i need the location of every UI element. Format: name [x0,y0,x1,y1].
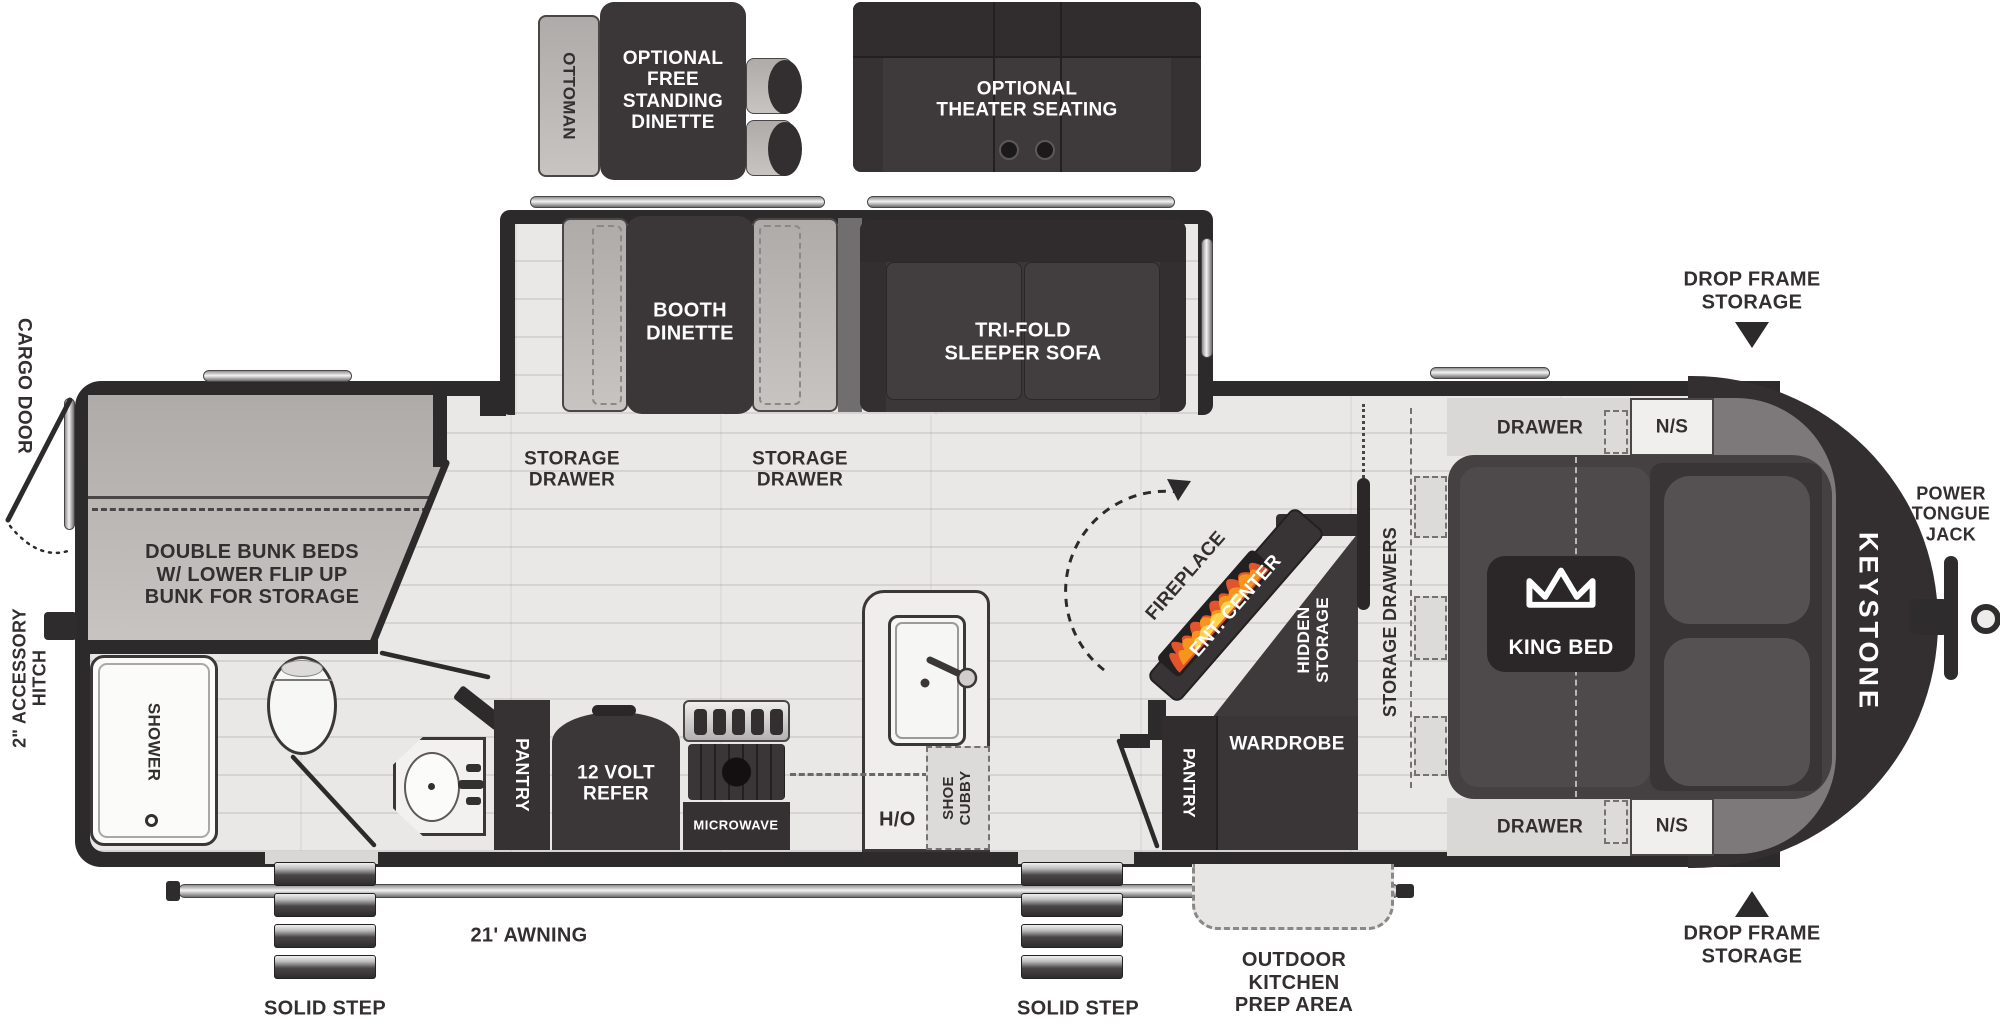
shoe-cubby-label: SHOE CUBBY [941,771,975,826]
stove-cooktop [683,700,790,742]
sleeper-sofa-label: TRI-FOLD SLEEPER SOFA [945,319,1102,364]
refrigerator-handle [592,705,636,716]
crown-icon [1518,564,1604,614]
slideout-rail-right [867,196,1175,208]
tv-mount-dotted-line [1362,404,1365,478]
pillow [1664,476,1810,624]
theater-armrest-right [1171,58,1201,172]
bedroom-dash-cabinet-front [1604,410,1628,454]
dinette-chair-back [768,122,802,176]
cargo-door-label: CARGO DOOR [13,318,34,454]
pillow [1664,638,1810,786]
under-bed-drawer [1414,596,1447,660]
bedroom-dash-cabinet-rear [1604,800,1628,844]
storage-drawers-dashed-line [1410,408,1412,788]
free-standing-dinette-label: OPTIONAL FREE STANDING DINETTE [623,48,724,134]
drop-frame-arrow-rear-icon [1735,891,1769,917]
under-bed-drawer [1414,476,1447,538]
slideout-partition [838,218,862,412]
hidden-storage-label: HIDDEN STORAGE [1294,597,1332,683]
solid-step-left [274,862,376,984]
solid-step-right-label: SOLID STEP [1017,998,1139,1021]
wardrobe-label: WARDROBE [1229,733,1344,754]
keystone-brand-label: KEYSTONE [1853,532,1884,712]
cargo-door-swing-arc [10,526,68,553]
bunk-divider-dashed [92,508,428,511]
sofa-armrest-left [860,262,886,412]
refer-label: 12 VOLT REFER [577,763,655,806]
drop-frame-arrow-front-icon [1735,322,1769,348]
solid-step-right [1021,862,1123,984]
floorplan-canvas: OTTOMAN OPTIONAL FREE STANDING DINETTE O… [0,0,2000,1028]
kitchen-sink [888,615,966,746]
cupholder-icon [1035,140,1055,160]
bath-bunk-wall [75,640,378,654]
microwave-label: MICROWAVE [693,819,778,834]
storage-drawer-left-label: STORAGE DRAWER [524,449,620,492]
under-bed-drawer [1414,716,1447,776]
booth-dinette-label: BOOTH DINETTE [646,299,734,344]
hitch-coupler [1910,599,1948,635]
outdoor-kitchen-prep-area [1192,864,1394,930]
bedroom-wall-stub-h [1120,734,1150,748]
theater-armrest-left [853,58,883,172]
kitchen-pantry-label: PANTRY [512,738,532,812]
storage-drawer-right-label: STORAGE DRAWER [752,449,848,492]
accessory-hitch-label: 2" ACCESSORY HITCH [10,608,51,748]
bath-sink-drain [428,783,435,790]
drop-frame-rear-label: DROP FRAME STORAGE [1683,922,1820,967]
bath-faucet-knob-bottom [466,797,481,805]
dinette-bench-right [752,218,838,412]
dinette-bench-left [562,218,628,412]
overhead-label: O/H [879,806,915,829]
awning-end-cap-left [166,881,180,901]
burner-slot [732,709,745,735]
bath-faucet-knob-top [466,764,481,772]
drop-frame-front-label: DROP FRAME STORAGE [1683,268,1820,313]
awning-label: 21' AWNING [470,925,587,948]
storage-drawers-label: STORAGE DRAWERS [1380,527,1400,717]
cupholder-icon [999,140,1019,160]
theater-seating-label: OPTIONAL THEATER SEATING [936,79,1117,122]
toilet-lid [281,660,323,677]
awning-end-cap-right [1396,884,1414,898]
burner-slot [713,709,726,735]
hitch-ball [1971,604,2000,634]
burner-slot [770,709,783,735]
theater-back [853,2,1201,58]
burner-slot [694,709,707,735]
outdoor-kitchen-label: OUTDOOR KITCHEN PREP AREA [1235,949,1353,1017]
dinette-chair-back [768,60,802,114]
sleeper-sofa [860,220,1186,412]
tv-bar [1357,478,1370,610]
roof-rail-left [203,370,352,382]
drawer-front-label: DRAWER [1497,417,1583,438]
bunk-beds-label: DOUBLE BUNK BEDS W/ LOWER FLIP UP BUNK F… [145,541,359,609]
sofa-armrest-right [1160,262,1186,412]
slideout-rail-side [1201,238,1213,358]
overhead-cabinet-line [790,773,928,776]
kitchen-sink-bowl [895,622,959,739]
slideout-rail-left [530,196,825,208]
ottoman-label: OTTOMAN [559,52,578,140]
solid-step-left-label: SOLID STEP [264,998,386,1021]
bunk-right-wall [433,393,447,467]
roof-rail-right [1430,367,1550,379]
shower-drain [145,814,158,827]
king-bed-label: KING BED [1508,636,1613,660]
toilet-seat-line [272,679,332,681]
drawer-rear-label: DRAWER [1497,816,1583,837]
sofa-back [860,220,1186,262]
nightstand-rear-label: N/S [1656,815,1689,836]
shower-label: SHOWER [144,703,163,781]
burner-slot [751,709,764,735]
bunk-divider-solid [88,496,432,499]
stove-grill [688,744,785,800]
bath-faucet-spout [458,780,484,789]
cargo-door-panel [64,398,75,530]
bedroom-pantry-label: PANTRY [1179,748,1198,818]
power-tongue-jack-label: POWER TONGUE JACK [1912,484,1990,545]
nightstand-front-label: N/S [1656,416,1689,437]
